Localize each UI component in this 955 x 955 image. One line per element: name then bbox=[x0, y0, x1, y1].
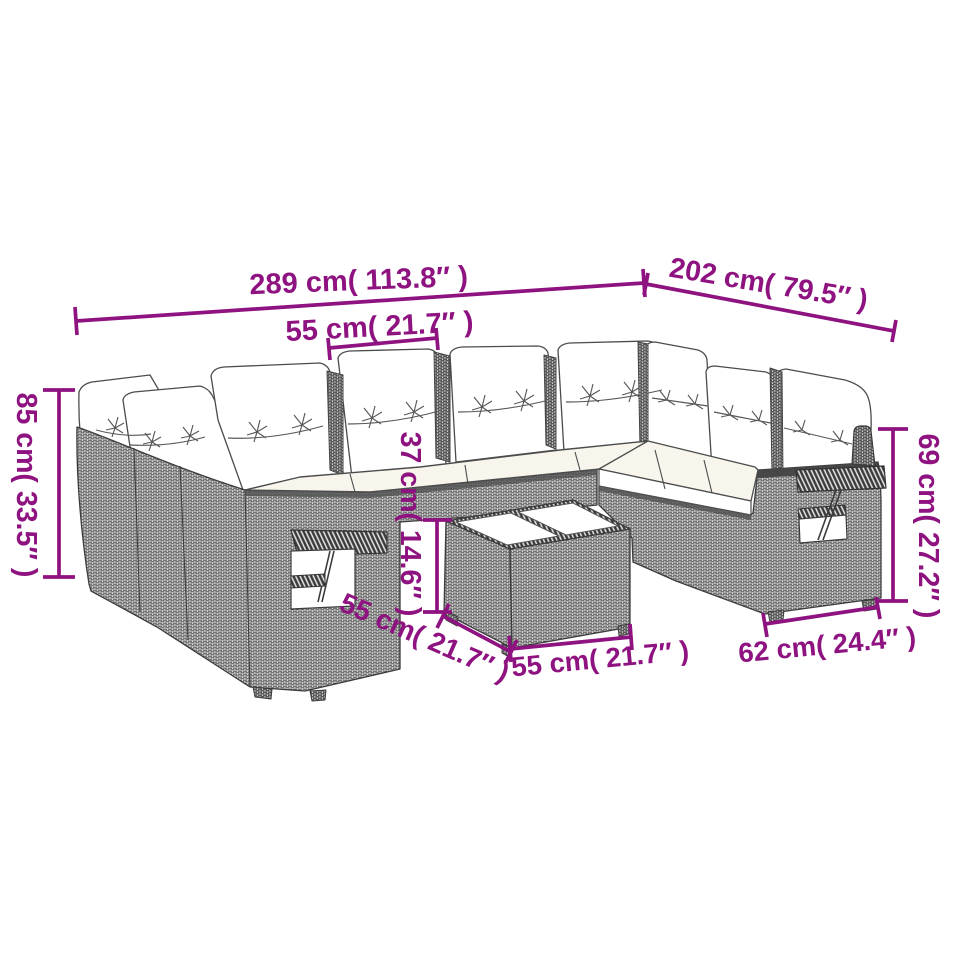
svg-text:85 cm( 33.5″ ): 85 cm( 33.5″ ) bbox=[10, 393, 42, 578]
svg-text:69 cm( 27.2″ ): 69 cm( 27.2″ ) bbox=[912, 434, 944, 619]
svg-text:55 cm( 21.7″ ): 55 cm( 21.7″ ) bbox=[285, 306, 474, 348]
svg-text:37 cm( 14.6″ ): 37 cm( 14.6″ ) bbox=[394, 432, 426, 617]
